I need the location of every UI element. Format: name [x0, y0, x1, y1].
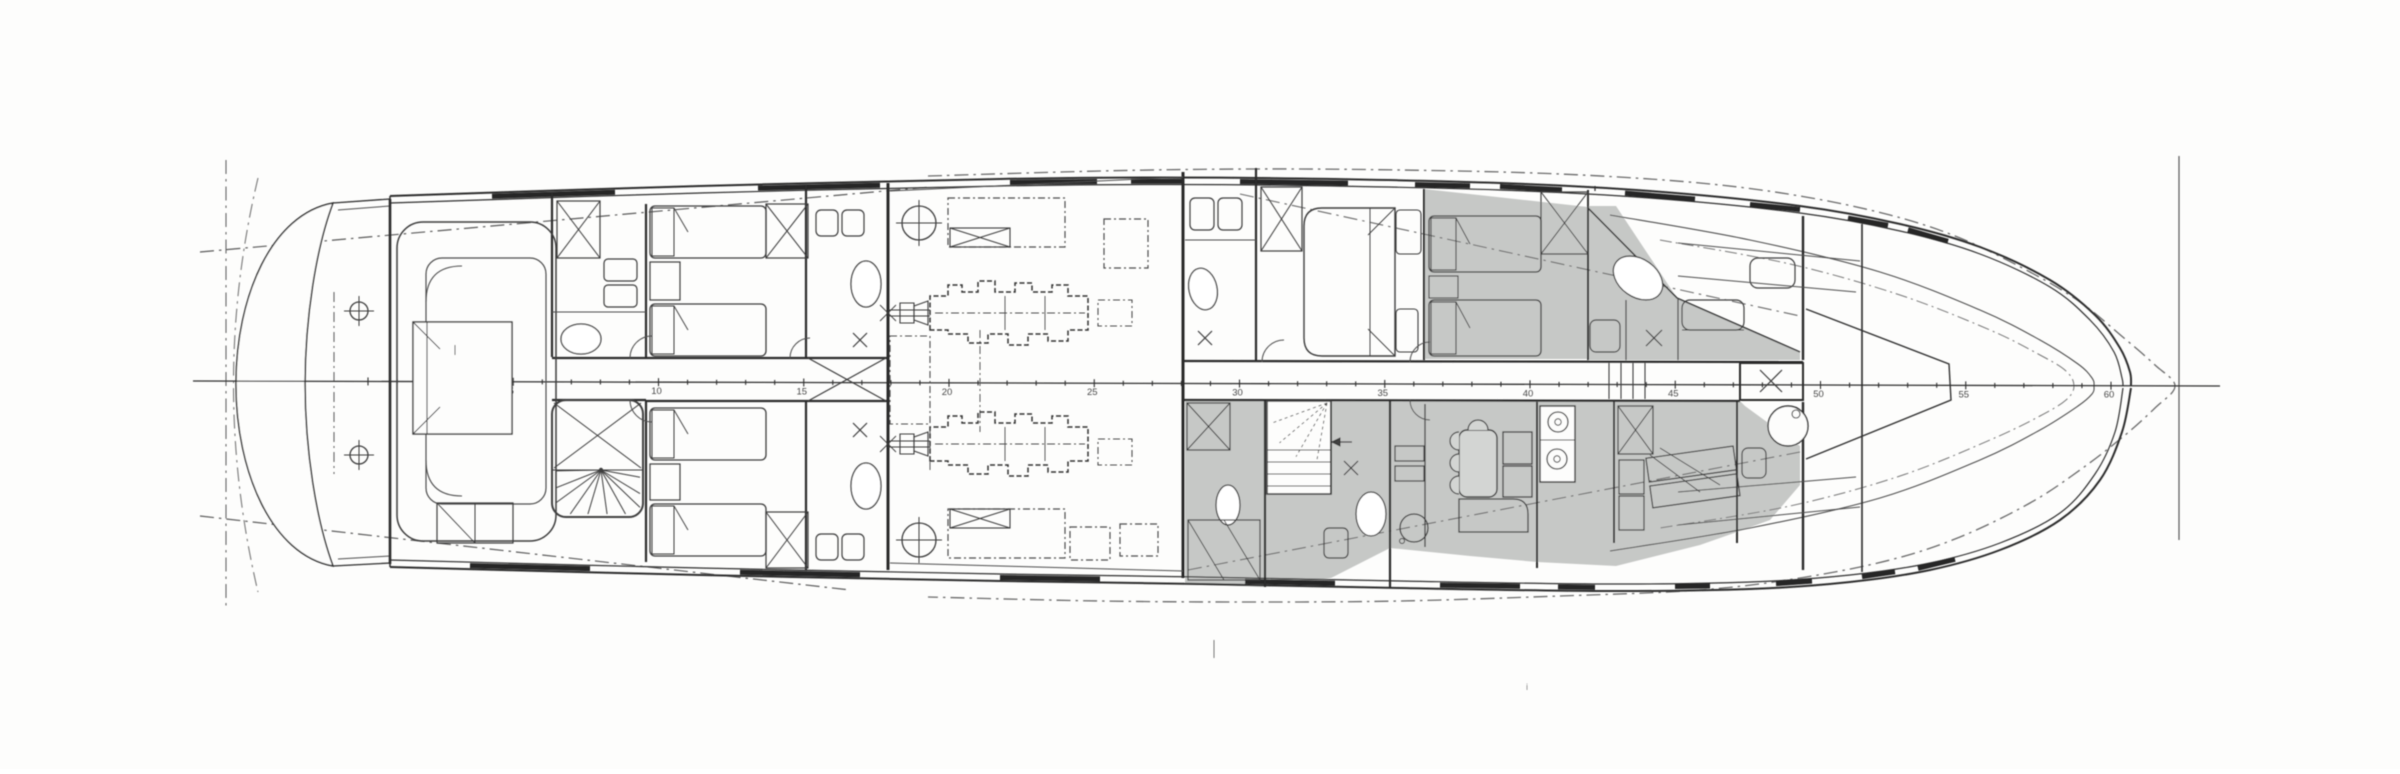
- svg-text:10: 10: [651, 386, 662, 397]
- svg-text:40: 40: [1523, 388, 1534, 399]
- svg-text:55: 55: [1958, 389, 1969, 400]
- svg-text:15: 15: [796, 387, 807, 398]
- svg-text:20: 20: [942, 387, 953, 398]
- svg-text:i: i: [1526, 682, 1528, 692]
- svg-text:25: 25: [1087, 387, 1098, 398]
- svg-text:30: 30: [1232, 388, 1243, 399]
- svg-text:50: 50: [1813, 389, 1824, 400]
- svg-text:60: 60: [2104, 390, 2115, 401]
- svg-text:35: 35: [1377, 388, 1388, 399]
- svg-text:45: 45: [1668, 389, 1679, 400]
